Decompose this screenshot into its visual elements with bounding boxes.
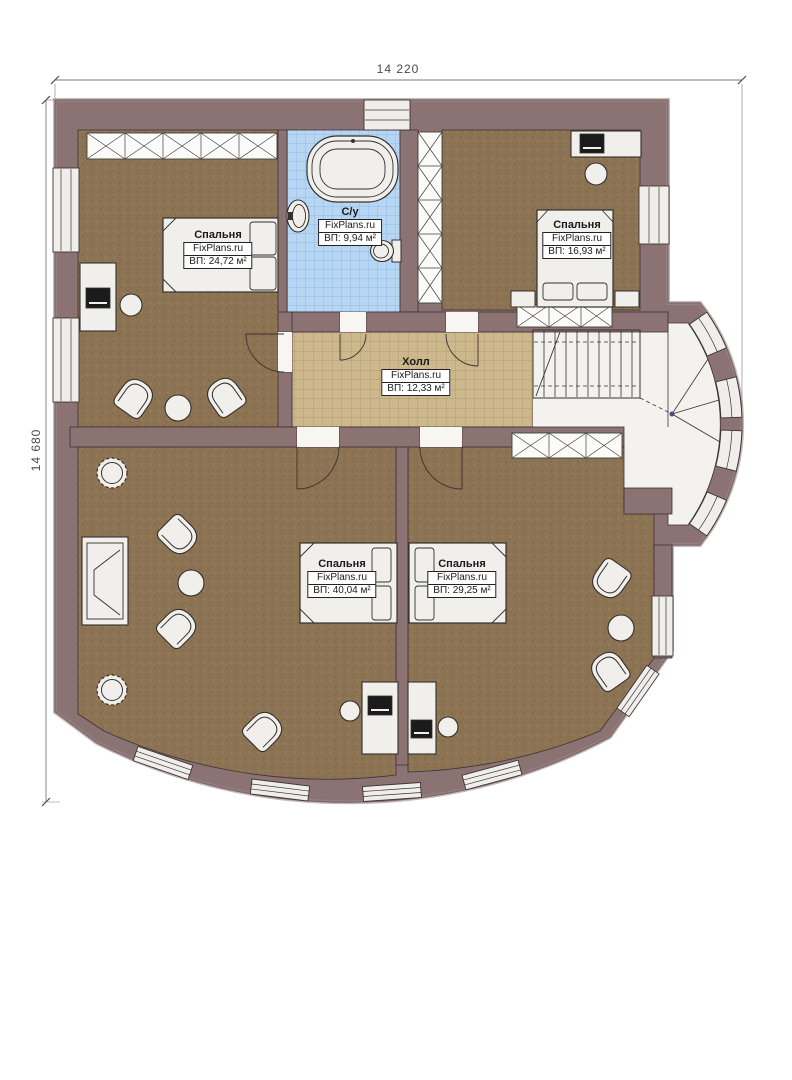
desk-top-right bbox=[571, 131, 641, 157]
room-label-bedroom-bottom-left: Спальня FixPlans.ru ВП: 40,04 м² bbox=[307, 558, 376, 598]
desk-chair-bottom-right bbox=[438, 717, 458, 737]
room-label-hall: Холл FixPlans.ru ВП: 12,33 м² bbox=[381, 356, 450, 396]
brand-watermark: FixPlans.ru bbox=[382, 370, 449, 383]
window-left-1 bbox=[53, 168, 79, 252]
room-name: Спальня bbox=[183, 229, 252, 241]
room-name: Холл bbox=[381, 356, 450, 368]
plant bbox=[97, 458, 127, 488]
wardrobe-bottom-right-bedroom bbox=[512, 433, 622, 458]
bathtub bbox=[307, 136, 398, 202]
window-left-2 bbox=[53, 318, 79, 402]
fireplace bbox=[82, 537, 128, 625]
room-name: Спальня bbox=[307, 558, 376, 570]
floor-plan-page: 14 220 14 680 Спальня FixPlans.ru ВП: 24… bbox=[0, 0, 792, 1080]
floor-plan-drawing bbox=[0, 0, 792, 1080]
round-table bbox=[178, 570, 204, 596]
room-info-box: FixPlans.ru ВП: 24,72 м² bbox=[183, 242, 252, 269]
round-table bbox=[608, 615, 634, 641]
desk-chair-top-right bbox=[585, 163, 607, 185]
room-name: С/у bbox=[318, 206, 382, 218]
dimension-top-label: 14 220 bbox=[377, 62, 420, 76]
desk-bottom-right bbox=[408, 682, 436, 754]
room-label-bedroom-top-left: Спальня FixPlans.ru ВП: 24,72 м² bbox=[183, 229, 252, 269]
room-area: ВП: 12,33 м² bbox=[382, 383, 449, 395]
desk-chair-bottom-left bbox=[340, 701, 360, 721]
wardrobe-top-left-bedroom bbox=[87, 133, 277, 159]
plant bbox=[97, 675, 127, 705]
room-info-box: FixPlans.ru ВП: 16,93 м² bbox=[542, 232, 611, 259]
room-label-bedroom-top-right: Спальня FixPlans.ru ВП: 16,93 м² bbox=[542, 219, 611, 259]
brand-watermark: FixPlans.ru bbox=[308, 572, 375, 585]
room-label-bathroom: С/у FixPlans.ru ВП: 9,94 м² bbox=[318, 206, 382, 246]
room-area: ВП: 16,93 м² bbox=[543, 246, 610, 258]
desk-chair-top-left bbox=[120, 294, 142, 316]
wardrobe-stair-top bbox=[517, 305, 612, 327]
window-top-bathroom bbox=[364, 100, 410, 130]
room-info-box: FixPlans.ru ВП: 12,33 м² bbox=[381, 369, 450, 396]
wardrobe-right-bedroom bbox=[418, 132, 442, 303]
room-area: ВП: 40,04 м² bbox=[308, 585, 375, 597]
stair-landing-floor bbox=[533, 331, 672, 427]
dimension-left-label: 14 680 bbox=[29, 429, 43, 472]
brand-watermark: FixPlans.ru bbox=[428, 572, 495, 585]
room-area: ВП: 9,94 м² bbox=[319, 233, 381, 245]
room-info-box: FixPlans.ru ВП: 29,25 м² bbox=[427, 571, 496, 598]
desk-top-left bbox=[80, 263, 116, 331]
brand-watermark: FixPlans.ru bbox=[319, 220, 381, 233]
sink bbox=[287, 200, 309, 232]
room-area: ВП: 24,72 м² bbox=[184, 256, 251, 268]
brand-watermark: FixPlans.ru bbox=[543, 233, 610, 246]
desk-bottom-left bbox=[362, 682, 398, 754]
landing-corridor-floor bbox=[624, 427, 672, 488]
room-area: ВП: 29,25 м² bbox=[428, 585, 495, 597]
round-table bbox=[165, 395, 191, 421]
window-right-bottom bbox=[652, 596, 673, 656]
room-info-box: FixPlans.ru ВП: 9,94 м² bbox=[318, 219, 382, 246]
window-right-bedroom bbox=[639, 186, 669, 244]
room-label-bedroom-bottom-right: Спальня FixPlans.ru ВП: 29,25 м² bbox=[427, 558, 496, 598]
room-name: Спальня bbox=[427, 558, 496, 570]
room-info-box: FixPlans.ru ВП: 40,04 м² bbox=[307, 571, 376, 598]
brand-watermark: FixPlans.ru bbox=[184, 243, 251, 256]
room-name: Спальня bbox=[542, 219, 611, 231]
